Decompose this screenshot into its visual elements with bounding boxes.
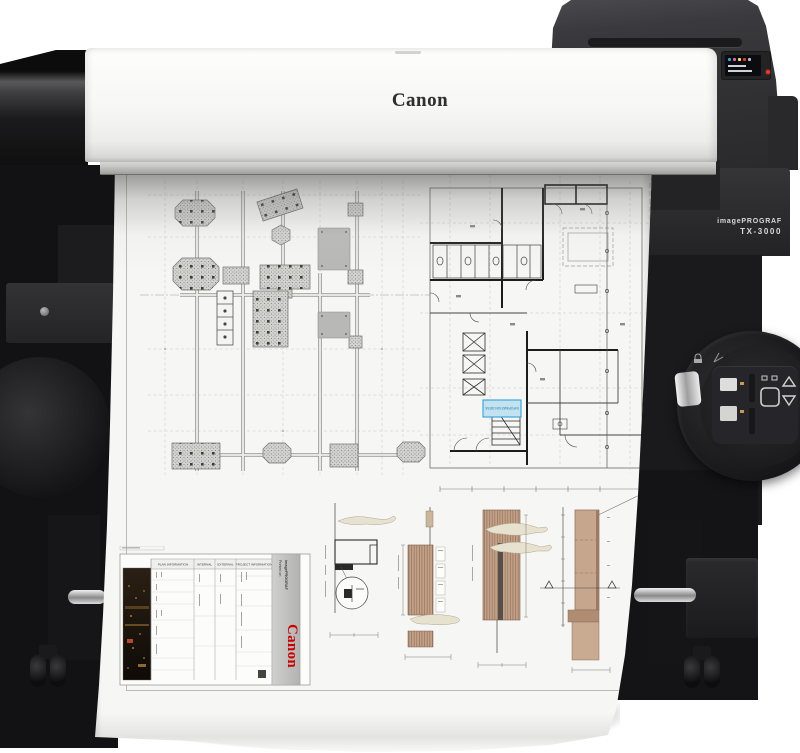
lock-body-icon [694, 359, 702, 363]
paper-roll-icon [720, 378, 737, 391]
right-stand-bar [634, 588, 696, 602]
model-name-line2: TX-3000 [717, 227, 782, 237]
screen-text-bar-1 [728, 65, 746, 67]
front-top-cover: Canon [85, 48, 717, 162]
antenna-icon [714, 353, 723, 362]
skylight-opening [563, 228, 613, 266]
power-led [766, 70, 770, 74]
ink-level-red-icon [743, 58, 746, 61]
foundation-pads [172, 189, 425, 469]
printed-on-brand-text: imagePROGRAF [284, 560, 288, 591]
elevation-drawing-b [398, 507, 460, 660]
stair-core [463, 333, 520, 445]
left-roll-holder-drum [0, 357, 110, 497]
header-project-information: PROJECT INFORMATION [236, 563, 273, 567]
architectural-floor-plan: INFORMATION DESK [420, 175, 654, 473]
accessory-basket [686, 558, 758, 638]
right-rear-edge-panel [768, 96, 798, 170]
up-arrow-button[interactable] [783, 377, 795, 386]
down-arrow-button[interactable] [783, 396, 795, 405]
ok-button[interactable] [761, 388, 779, 406]
mini-square-icon-1 [762, 376, 767, 380]
restroom-cluster [433, 245, 541, 278]
ink-level-gray-icon [748, 58, 751, 61]
header-external: EXTERNAL [217, 563, 234, 567]
left-top-housing [0, 50, 88, 168]
dimension-ruler [440, 486, 652, 519]
information-desk-highlight: INFORMATION DESK [483, 400, 521, 417]
building-photo-thumbnail [123, 568, 151, 680]
printer-product-photo: imagePROGRAF TX-3000 [0, 0, 800, 753]
indicator-led-a [740, 382, 744, 385]
control-panel-screen[interactable] [722, 52, 770, 79]
title-block: PLAN INFORMATION INTERNAL EXTERNAL PROJE… [118, 546, 312, 688]
left-stand-bar [68, 590, 106, 604]
header-plan-information: PLAN INFORMATION [158, 563, 188, 567]
status-glyphs [692, 350, 726, 369]
floor-plan-drawing: INFORMATION DESK [120, 173, 660, 485]
printed-on-text: Printed on [278, 560, 282, 576]
sheet-number-text-bar [122, 547, 140, 548]
ink-level-yellow-icon [738, 58, 741, 61]
canon-embossed-logo: Canon [392, 90, 448, 112]
left-roll-bracket [6, 283, 114, 343]
left-stand-leg [48, 515, 100, 660]
cover-notch [395, 51, 421, 54]
ink-level-cyan-icon [728, 58, 731, 61]
model-name-line1: imagePROGRAF [717, 218, 782, 227]
screen-text-bar-2 [728, 70, 752, 72]
information-desk-label: INFORMATION DESK [484, 406, 518, 410]
selector-slot-bottom [749, 408, 755, 434]
canon-red-logo: Canon [284, 624, 300, 668]
printed-on-imageprograf-band: Printed on imagePROGRAF Canon [272, 554, 300, 685]
section-drawing-d [540, 507, 620, 673]
paper-sheet-icon [720, 406, 737, 421]
left-body-step [58, 225, 118, 287]
room-labels [456, 208, 625, 380]
model-name-label: imagePROGRAF TX-3000 [717, 218, 782, 237]
roll-feed-icons [712, 366, 798, 444]
mini-square-icon-2 [772, 376, 777, 380]
selector-slot-top [749, 374, 755, 402]
indicator-led-b [740, 410, 744, 413]
chrome-release-lever [674, 371, 701, 407]
printed-blueprint-sheet: INFORMATION DESK [90, 165, 658, 753]
rear-cover-seam [588, 38, 742, 47]
ink-level-magenta-icon [733, 58, 736, 61]
concrete-slabs [318, 228, 350, 338]
detail-drawing-a [325, 503, 396, 638]
elevation-drawing-c [472, 510, 552, 668]
screen-display [725, 55, 761, 76]
roll-feed-control-plate [712, 366, 798, 444]
header-internal: INTERNAL [197, 563, 213, 567]
caster-wheel-right [684, 646, 724, 692]
screw-icon [40, 307, 49, 316]
caster-wheel-left [30, 645, 70, 691]
column-line [605, 188, 608, 468]
foundation-beams [172, 191, 420, 471]
ladder-detail [217, 291, 233, 345]
